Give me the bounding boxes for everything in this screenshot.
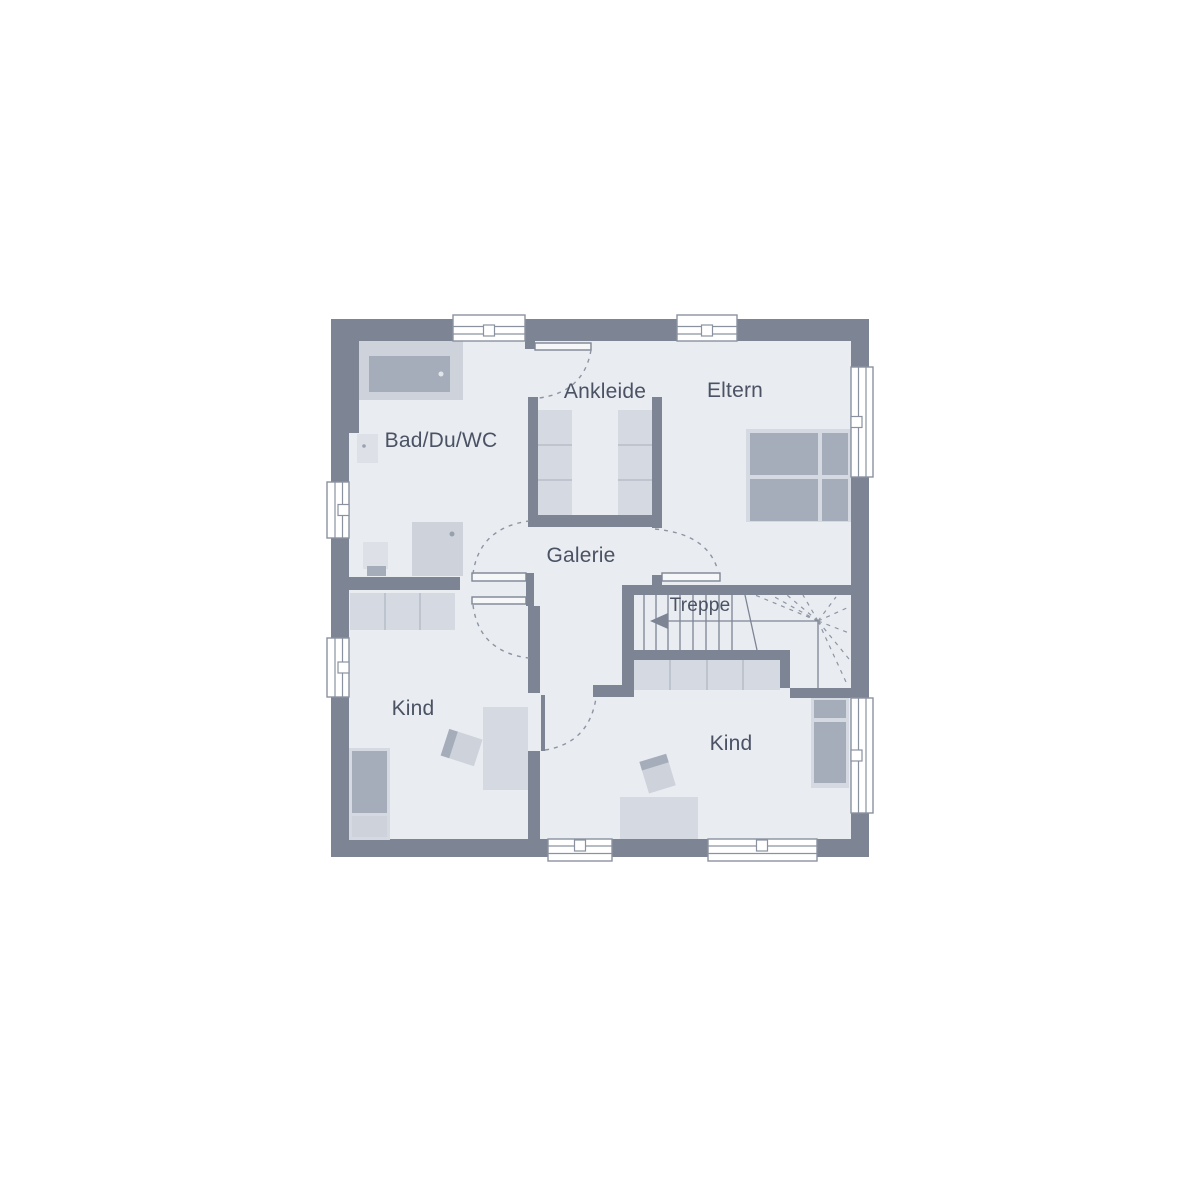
wardrobe-under-stairs (634, 660, 780, 690)
door-leaf-child-left (472, 597, 526, 604)
room-label-stairs: Treppe (670, 595, 731, 617)
room-label-child-left: Kind (392, 697, 435, 721)
window-bottom-left (548, 839, 612, 861)
child-left-bed (349, 748, 390, 840)
floor-plan-page: Bad/Du/WC Ankleide Eltern Galerie Treppe… (0, 0, 1200, 1200)
room-label-parents: Eltern (707, 379, 763, 403)
child-right-bed (811, 697, 849, 788)
wardrobe-dressing-left (538, 410, 572, 515)
wardrobe-child-left-side (483, 707, 528, 790)
room-label-gallery: Galerie (546, 544, 615, 568)
wardrobe-child-left-top (350, 593, 455, 630)
floor-plan-drawing (0, 0, 1200, 1200)
washbasin (357, 434, 378, 463)
window-bottom-right (708, 839, 817, 861)
door-leaf-parents (662, 573, 720, 581)
shower (412, 522, 463, 576)
door-leaf-dressing (535, 343, 591, 350)
room-label-child-right: Kind (710, 732, 753, 756)
window-right-upper (851, 367, 873, 477)
door-leaf-child-right (541, 695, 545, 751)
window-top-right (677, 315, 737, 341)
window-top-left (453, 315, 525, 341)
room-label-bathroom: Bad/Du/WC (385, 429, 498, 453)
bathtub (359, 341, 463, 400)
window-left-lower (327, 638, 349, 697)
child-right-sideboard (620, 797, 698, 839)
window-left-upper (327, 482, 349, 538)
room-label-dressing: Ankleide (564, 380, 646, 404)
wardrobe-dressing-right (618, 410, 652, 515)
door-leaf-bathroom (472, 573, 526, 581)
parents-bed (746, 429, 851, 522)
window-right-lower (851, 698, 873, 813)
